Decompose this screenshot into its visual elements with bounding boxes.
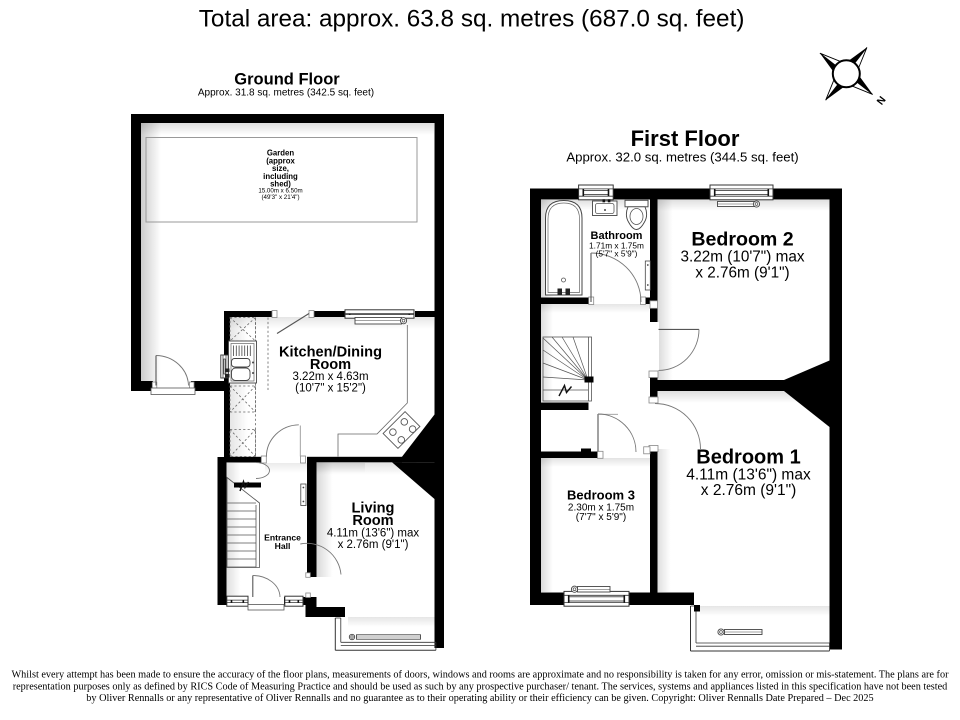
svg-text:Bedroom 2: Bedroom 2 <box>691 229 793 251</box>
svg-text:Bedroom 3: Bedroom 3 <box>567 488 635 503</box>
svg-text:(49'3" x 21'4"): (49'3" x 21'4") <box>261 194 299 201</box>
svg-text:Bedroom 1: Bedroom 1 <box>696 447 800 469</box>
svg-text:3.22m (10'7") max: 3.22m (10'7") max <box>681 249 805 266</box>
svg-text:Hall: Hall <box>275 541 291 551</box>
svg-text:Ground Floor: Ground Floor <box>234 71 340 89</box>
svg-text:Whilst every attempt has been: Whilst every attempt has been made to en… <box>11 670 949 681</box>
svg-text:(10'7" x 15'2"): (10'7" x 15'2") <box>295 382 366 394</box>
svg-text:by Oliver Rennalls or any repr: by Oliver Rennalls or any representative… <box>86 693 873 704</box>
svg-text:representation purposes only a: representation purposes only as defined … <box>13 681 948 692</box>
svg-text:x 2.76m (9'1"): x 2.76m (9'1") <box>701 482 796 499</box>
svg-text:4.11m (13'6") max: 4.11m (13'6") max <box>327 527 420 539</box>
svg-text:(7'7" x 5'9"): (7'7" x 5'9") <box>576 512 626 523</box>
svg-text:(5'7" x 5'9"): (5'7" x 5'9") <box>596 249 638 259</box>
svg-text:Approx. 31.8 sq. metres (342.5: Approx. 31.8 sq. metres (342.5 sq. feet) <box>198 88 374 99</box>
svg-text:Approx. 32.0 sq. metres (344.5: Approx. 32.0 sq. metres (344.5 sq. feet) <box>566 150 798 165</box>
svg-text:3.22m x 4.63m: 3.22m x 4.63m <box>292 371 368 383</box>
svg-text:x 2.76m (9'1"): x 2.76m (9'1") <box>695 265 789 282</box>
svg-text:First Floor: First Floor <box>631 126 740 151</box>
svg-text:4.11m (13'6") max: 4.11m (13'6") max <box>686 467 811 484</box>
svg-text:Total area: approx. 63.8 sq. m: Total area: approx. 63.8 sq. metres (687… <box>199 6 745 33</box>
svg-text:x 2.76m (9'1"): x 2.76m (9'1") <box>338 539 409 551</box>
